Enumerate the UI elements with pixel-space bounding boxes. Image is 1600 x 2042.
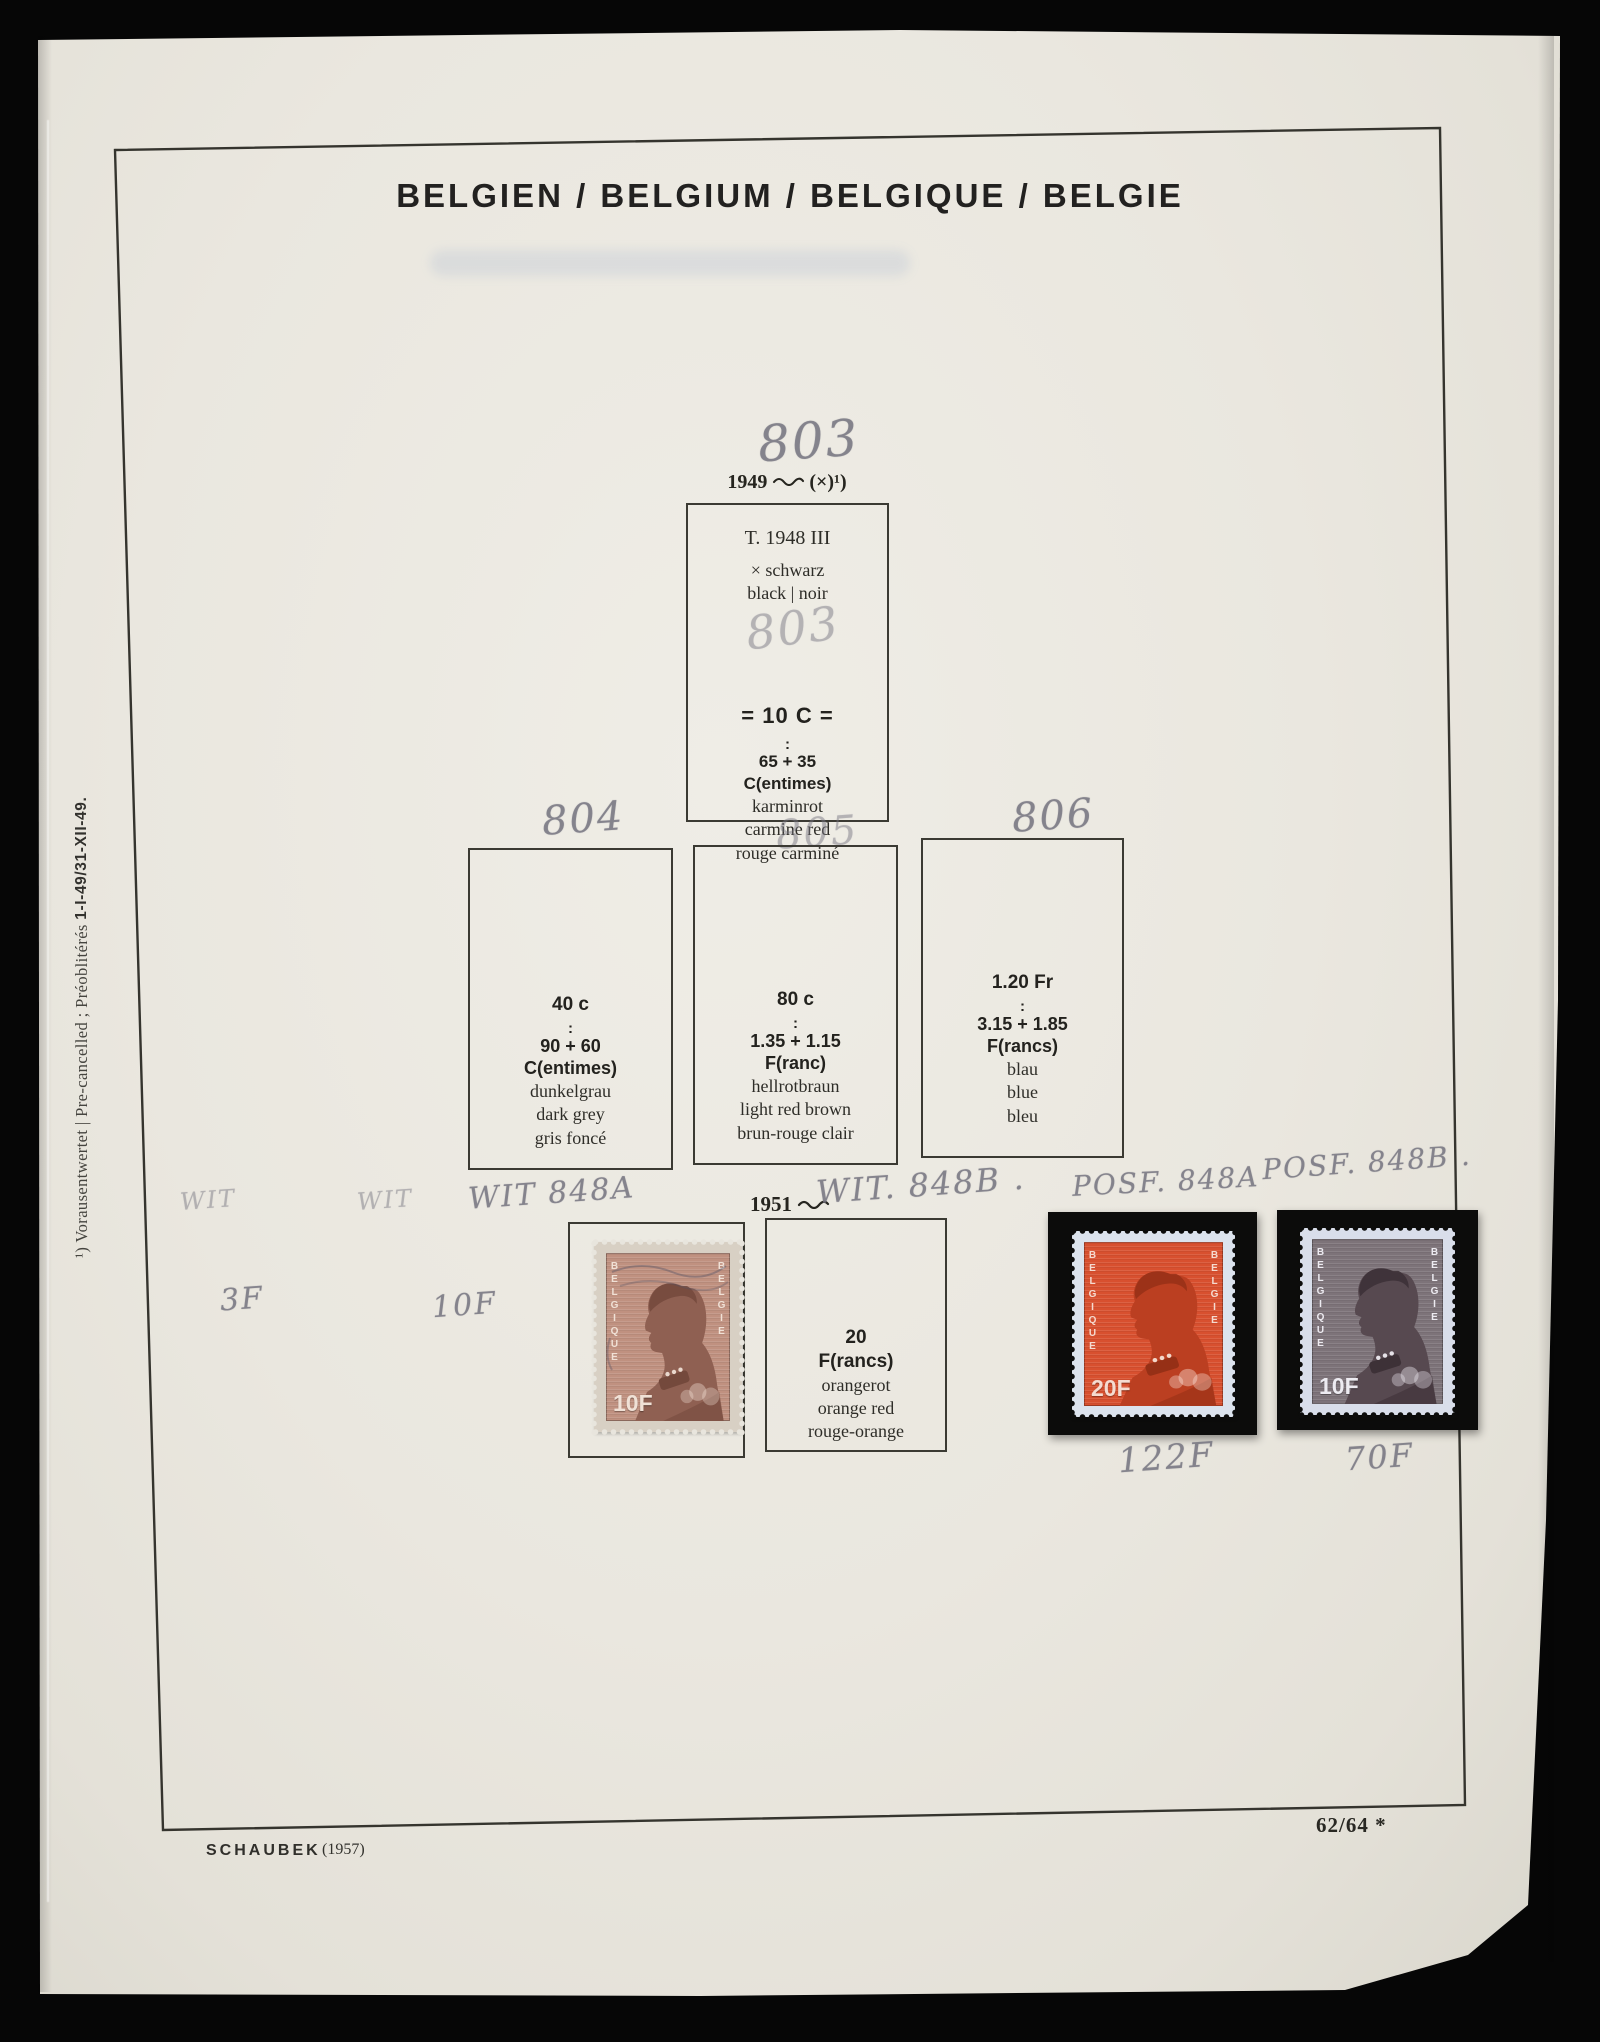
- denomination-line: 20: [767, 1326, 945, 1350]
- face-value-line: 3.15 + 1.85: [923, 1013, 1122, 1036]
- color-name-de: hellrotbraun: [695, 1075, 896, 1098]
- pencil-price-3f: 3F: [219, 1281, 265, 1319]
- publisher-name: SCHAUBEK: [206, 1842, 321, 1860]
- margin-footnote-dates: 1-I-49/31-XII-49.: [73, 797, 90, 920]
- page-title: BELGIEN / BELGIUM / BELGIQUE / BELGIE: [140, 179, 1440, 212]
- currency-line: F(ranc): [695, 1052, 896, 1075]
- currency-line: F(rancs): [923, 1035, 1122, 1058]
- stamp-box-803: 803 T. 1948 III × schwarz black | noir =…: [686, 503, 889, 822]
- pencil-price-10f: 10F: [431, 1286, 498, 1325]
- color-name-fr: rouge-orange: [767, 1420, 945, 1443]
- currency-line: C(entimes): [470, 1057, 671, 1080]
- stamp-848a-mint: BELGIQUE BELGIE 20F: [1072, 1231, 1235, 1417]
- colon-separator: :: [470, 1023, 671, 1035]
- issue-year: 1949: [727, 471, 767, 493]
- overprint-color-en-fr: black | noir: [688, 582, 887, 605]
- pencil-number-804: 804: [540, 793, 625, 845]
- denomination-line: = 10 C =: [688, 702, 887, 730]
- country-name-right: BELGIE: [1429, 1247, 1440, 1325]
- colon-separator: :: [923, 1001, 1122, 1013]
- pencil-price-122f: 122F: [1117, 1435, 1216, 1482]
- wavy-dash-icon: [771, 474, 805, 486]
- country-name-left: BELGIQUE: [1087, 1250, 1098, 1354]
- stamp-848a-used: BELGIQUE BELGIE 10F: [594, 1242, 742, 1432]
- margin-footnote: ¹) Vorausentwertet | Pre-cancelled ; Pré…: [72, 742, 106, 1258]
- country-name-left: BELGIQUE: [1315, 1247, 1326, 1351]
- color-name-de: dunkelgrau: [470, 1080, 671, 1103]
- stamp-box-805: 80 c : 1.35 + 1.15 F(ranc) hellrotbraun …: [693, 845, 898, 1165]
- type-line: T. 1948 III: [688, 525, 887, 551]
- pencil-note-wit-1: WIT: [179, 1184, 237, 1216]
- stamp-box-848a: BELGIQUE BELGIE 10F: [568, 1222, 745, 1458]
- color-name-en: light red brown: [695, 1098, 896, 1121]
- currency-line: C(entimes): [688, 773, 887, 794]
- overprint-color-de: × schwarz: [688, 559, 887, 582]
- color-name-en: dark grey: [470, 1103, 671, 1126]
- pencil-price-70f: 70F: [1344, 1436, 1415, 1479]
- face-value-line: 65 + 35: [688, 751, 887, 772]
- face-value: 20F: [1091, 1375, 1131, 1402]
- stamp-mount-848b: BELGIQUE BELGIE 10F: [1277, 1210, 1478, 1430]
- stamp-mount-848a: BELGIQUE BELGIE 20F: [1048, 1212, 1257, 1435]
- pencil-number-803: 803: [756, 409, 861, 474]
- denomination-line: 1.20 Fr: [923, 971, 1122, 995]
- colon-separator: :: [688, 739, 887, 751]
- stamp-box-804: 40 c : 90 + 60 C(entimes) dunkelgrau dar…: [468, 848, 673, 1170]
- color-name-de: orangerot: [767, 1374, 945, 1397]
- color-name-en: orange red: [767, 1397, 945, 1420]
- issue-note: (×)¹): [809, 471, 846, 493]
- color-name-de: blau: [923, 1058, 1122, 1081]
- scanned-album-page: BELGIEN / BELGIUM / BELGIQUE / BELGIE ¹)…: [0, 0, 1600, 2042]
- colon-separator: :: [695, 1018, 896, 1030]
- face-value: 10F: [1319, 1373, 1359, 1400]
- currency-line: F(rancs): [767, 1350, 945, 1374]
- page-number: 62/64 *: [1316, 1813, 1387, 1838]
- issue-caption-1949: 1949(×)¹): [656, 471, 918, 494]
- pencil-note-wit-2: WIT: [356, 1184, 414, 1216]
- denomination-line: 40 c: [470, 993, 671, 1017]
- country-name-right: BELGIE: [1209, 1250, 1220, 1328]
- stamp-box-848b: 20 F(rancs) orangerot orange red rouge-o…: [765, 1218, 947, 1452]
- pencil-number-806: 806: [1010, 790, 1095, 842]
- color-name-fr: bleu: [923, 1105, 1122, 1128]
- stamp-848b-mint: BELGIQUE BELGIE 10F: [1300, 1228, 1455, 1415]
- denomination-line: 80 c: [695, 988, 896, 1012]
- color-name-en: blue: [923, 1081, 1122, 1104]
- stamp-box-806: 1.20 Fr : 3.15 + 1.85 F(rancs) blau blue…: [921, 838, 1124, 1158]
- face-value-line: 1.35 + 1.15: [695, 1030, 896, 1053]
- color-name-fr: brun-rouge clair: [695, 1122, 896, 1145]
- pencil-cancel-marks: [594, 1242, 742, 1432]
- edition-year: (1957): [322, 1841, 365, 1859]
- issue-year: 1951: [750, 1192, 792, 1216]
- margin-footnote-text: ¹) Vorausentwertet | Pre-cancelled ; Pré…: [72, 924, 91, 1258]
- face-value-line: 90 + 60: [470, 1035, 671, 1058]
- color-name-fr: gris foncé: [470, 1127, 671, 1150]
